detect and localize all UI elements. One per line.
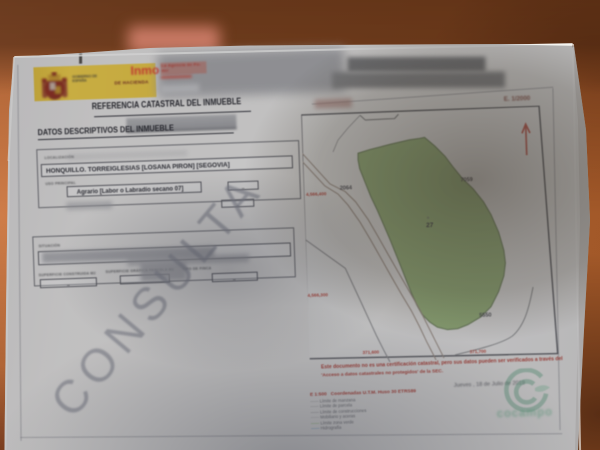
svg-text:2064: 2064 (340, 185, 353, 191)
svg-text:371,600: 371,600 (362, 349, 379, 355)
svg-text:371,700: 371,700 (469, 349, 486, 355)
svg-text:4,566,400: 4,566,400 (306, 191, 327, 197)
svg-text:5550: 5550 (479, 312, 491, 318)
svg-text:27: 27 (426, 222, 434, 229)
svg-text:4,566,300: 4,566,300 (307, 292, 328, 298)
svg-text:7059: 7059 (460, 177, 472, 183)
